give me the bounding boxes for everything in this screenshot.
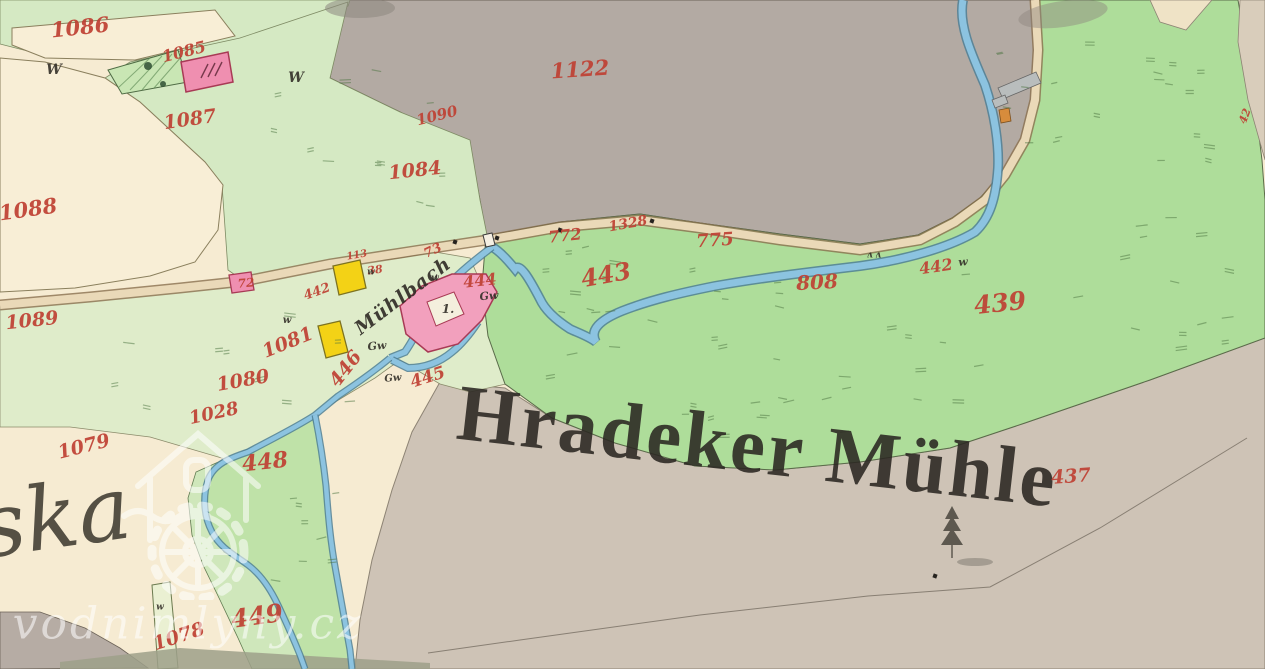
parcel-number-label: 439 [973, 288, 1028, 318]
land-use-letter: w [431, 275, 439, 284]
small-hut [999, 108, 1011, 123]
parcel-number-label: 1084 [388, 159, 443, 183]
land-use-letter: Gw [367, 340, 387, 353]
land-use-letter: ʌ ʌ [867, 252, 881, 261]
parcel-number-label: 1089 [5, 309, 60, 333]
land-use-letter: Gw [479, 290, 499, 303]
land-use-letter: w [283, 316, 292, 326]
land-use-letter: w [958, 256, 968, 268]
parcel-number-label: 444 [463, 271, 498, 290]
parcel-number-label: 808 [796, 271, 839, 293]
land-use-letter: w [367, 269, 375, 278]
land-use-letter: W [288, 71, 304, 85]
parcel-number-label: 442 [918, 257, 953, 277]
land-use-letter: Gw [384, 373, 402, 384]
building-wooden-upper [333, 260, 366, 295]
parcel-number-label: 772 [548, 226, 583, 245]
parcel-number-label: 775 [696, 231, 735, 252]
parcel-number-label: 72 [237, 276, 255, 289]
land-use-letter: 1. [442, 303, 455, 315]
watermark-text: vodnimlyny.cz [13, 599, 364, 650]
watermark-mill-logo [118, 420, 278, 600]
parcel-number-label: 437 [1051, 466, 1092, 488]
parcel-number-label: 1122 [550, 56, 610, 81]
cadastral-map: Hradeker Mühle Mühlbach ska 108610851087… [0, 0, 1265, 669]
parcel-number-label: 1086 [50, 14, 110, 41]
place-name-fragment: ska [0, 455, 137, 578]
tree-shadow [957, 558, 993, 566]
land-use-letter: W [46, 63, 62, 77]
